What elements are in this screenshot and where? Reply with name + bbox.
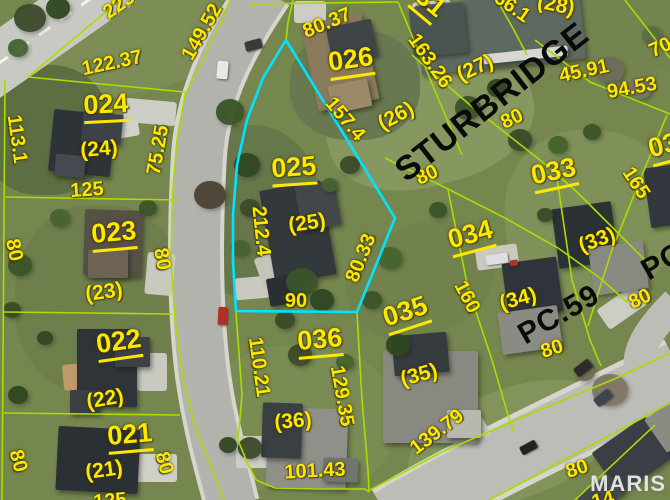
lot-number-label: (23): [84, 279, 124, 305]
parcel-number-label: 024: [83, 90, 130, 124]
lot-number-label: (25): [287, 210, 327, 236]
parcel-boundary-line: [2, 80, 5, 500]
dimension-label: 101.43: [284, 459, 346, 482]
dimension-label: 80: [2, 237, 26, 263]
maris-watermark: MARIS: [590, 473, 666, 495]
parcel-boundary-line: [250, 2, 398, 4]
parcel-boundary-line: [4, 413, 180, 415]
aerial-parcel-map[interactable]: MARIS 223149.52122.37113.175.25125808080…: [0, 0, 670, 500]
dimension-label: 125: [70, 179, 105, 201]
parcel-number-label: 036: [296, 324, 344, 360]
parcel-boundary-line: [171, 0, 230, 500]
parcel-number-label: 023: [90, 217, 138, 253]
parcel-boundary-line: [557, 178, 601, 366]
dimension-label: 212.4: [248, 205, 273, 257]
parcel-boundary-line: [236, 312, 242, 440]
parcel-number-label: 022: [94, 325, 143, 363]
parcel-number-label: 025: [270, 152, 317, 187]
dimension-label: 80: [150, 246, 174, 271]
lot-number-label: (36): [273, 409, 312, 433]
parcel-number-label: 021: [106, 419, 154, 455]
parcel-boundary-line: [286, 0, 293, 40]
dimension-label: 125: [93, 490, 128, 500]
dimension-label: 90: [285, 291, 307, 311]
lot-number-label: (24): [79, 137, 118, 161]
parcel-boundary-line: [357, 313, 369, 492]
lot-number-label: (21): [84, 457, 124, 483]
parcel-boundary-line: [4, 312, 172, 314]
parcel-number-label: 026: [326, 43, 375, 81]
